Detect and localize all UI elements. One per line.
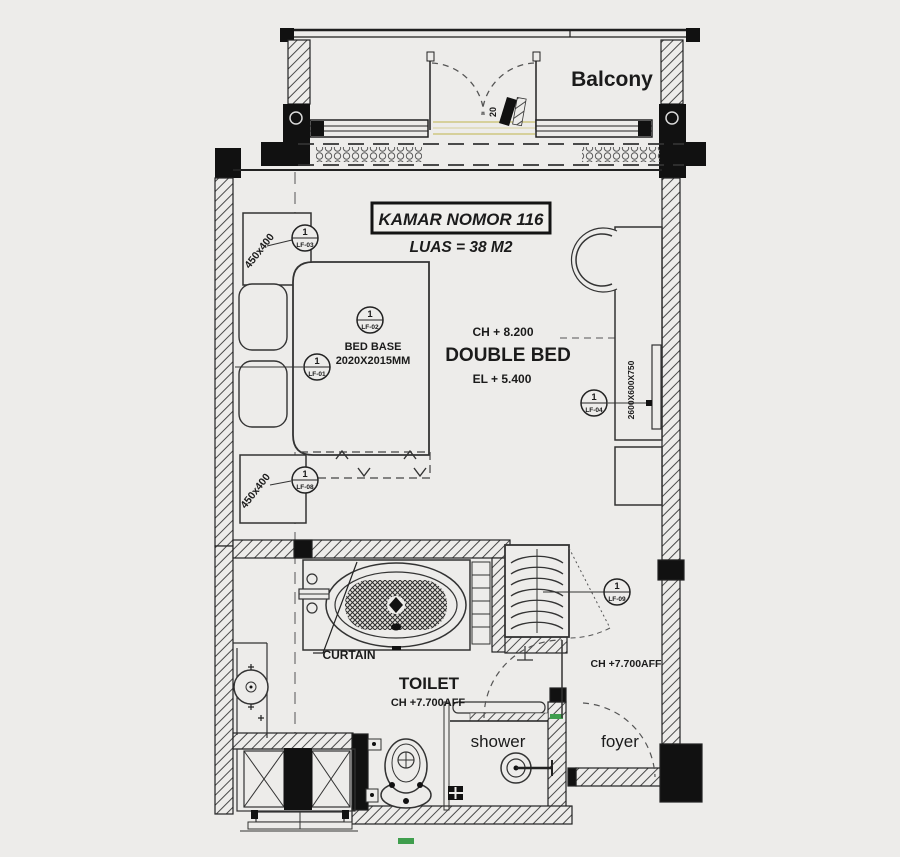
marker-number: 1 bbox=[314, 356, 320, 367]
wall-bottom bbox=[352, 806, 572, 824]
marker-lf08: 1 LF-08 bbox=[292, 467, 318, 493]
pillow bbox=[239, 284, 287, 350]
balcony-wall-right bbox=[661, 40, 683, 104]
wall-right-bedroom bbox=[662, 178, 680, 560]
wall-right-black-segment bbox=[658, 560, 684, 580]
desk-dim-label: 2600X600X750 bbox=[626, 360, 636, 419]
curtain-label: CURTAIN bbox=[322, 648, 375, 662]
toilet-label: TOILET bbox=[399, 674, 460, 693]
marker-lf02: 1 LF-02 bbox=[357, 307, 383, 333]
background bbox=[0, 0, 900, 857]
bathtub bbox=[299, 560, 470, 650]
window-right bbox=[536, 120, 652, 137]
pillow bbox=[239, 361, 287, 427]
room-area: LUAS = 38 M2 bbox=[410, 239, 513, 256]
marker-number: 1 bbox=[367, 309, 373, 320]
double-bed-label: DOUBLE BED bbox=[445, 345, 571, 366]
balcony-label: Balcony bbox=[571, 68, 653, 91]
tub-handle bbox=[307, 603, 317, 613]
balcony-wall-left bbox=[288, 40, 310, 104]
balcony-corner-block-right bbox=[686, 28, 700, 42]
desk bbox=[615, 227, 662, 440]
marker-lf09: 1 LF-09 bbox=[604, 579, 630, 605]
bed-base-dim: 2020X2015MM bbox=[336, 355, 411, 367]
wall-left-bathroom bbox=[215, 546, 233, 814]
elevation-bedroom: EL + 5.400 bbox=[473, 372, 532, 386]
marker-lf01: 1 LF-01 bbox=[304, 354, 330, 380]
window-left bbox=[310, 120, 428, 137]
ceiling-height-bedroom: CH + 8.200 bbox=[472, 325, 533, 339]
marker-id: LF-02 bbox=[361, 324, 379, 331]
wall-shaft-top bbox=[233, 733, 353, 749]
marker-number: 1 bbox=[302, 469, 308, 480]
marker-id: LF-09 bbox=[608, 596, 626, 603]
marker-id: LF-03 bbox=[296, 242, 314, 249]
towel-shelf bbox=[472, 562, 490, 644]
marker-number: 1 bbox=[614, 581, 620, 592]
closet-sill bbox=[505, 637, 567, 653]
wall-right-corridor bbox=[662, 580, 680, 744]
marker-number: 1 bbox=[591, 392, 597, 403]
marker-id: LF-04 bbox=[585, 407, 603, 414]
wall-left-bedroom bbox=[215, 178, 233, 546]
bed-base-label: BED BASE bbox=[345, 341, 402, 353]
wall-tub-closet bbox=[492, 558, 506, 652]
marker-id: LF-01 bbox=[308, 371, 326, 378]
tub-handle bbox=[307, 574, 317, 584]
room-title: KAMAR NOMOR 116 bbox=[379, 210, 545, 229]
marker-lf04: 1 LF-04 bbox=[581, 390, 607, 416]
floor-plan: Balcony 20 bbox=[0, 0, 900, 857]
shower-label: shower bbox=[471, 732, 526, 751]
balcony-door-mark: 20 bbox=[488, 107, 498, 117]
column-bottom-right bbox=[660, 744, 702, 802]
wall-bed-bath-divider bbox=[233, 540, 510, 558]
marker-number: 1 bbox=[302, 227, 308, 238]
shaft-column bbox=[284, 748, 312, 810]
foyer-sill bbox=[576, 768, 660, 786]
marker-lf03: 1 LF-03 bbox=[292, 225, 318, 251]
marker-id: LF-08 bbox=[296, 484, 314, 491]
ceiling-foyer: CH +7.700AFF bbox=[591, 658, 662, 670]
ceiling-toilet: CH +7.700AFF bbox=[391, 697, 466, 709]
green-tick bbox=[398, 838, 414, 844]
green-tick bbox=[550, 714, 563, 719]
drawer-unit bbox=[615, 447, 662, 505]
foyer-label: foyer bbox=[601, 732, 639, 751]
